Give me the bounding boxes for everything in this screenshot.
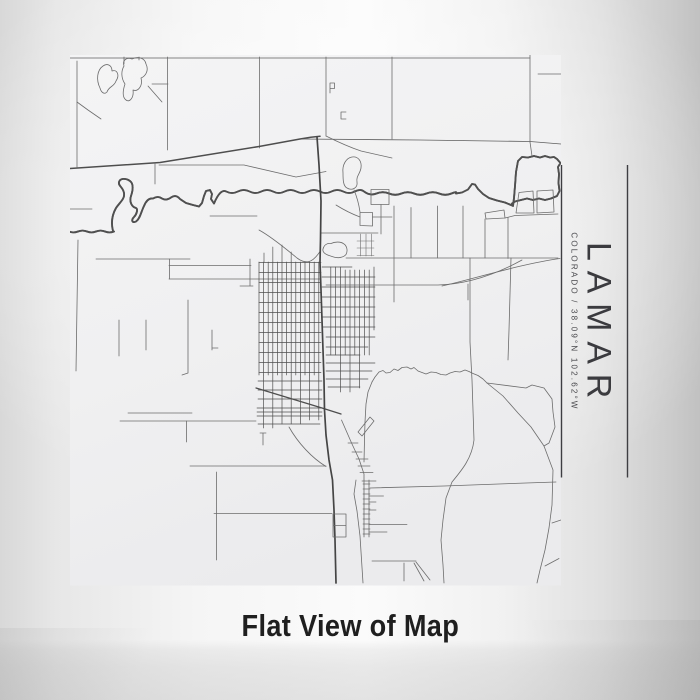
svg-text:COLORADO / 38.09°N 102.62°W: COLORADO / 38.09°N 102.62°W (570, 232, 579, 410)
svg-text:LAMAR: LAMAR (580, 242, 618, 408)
